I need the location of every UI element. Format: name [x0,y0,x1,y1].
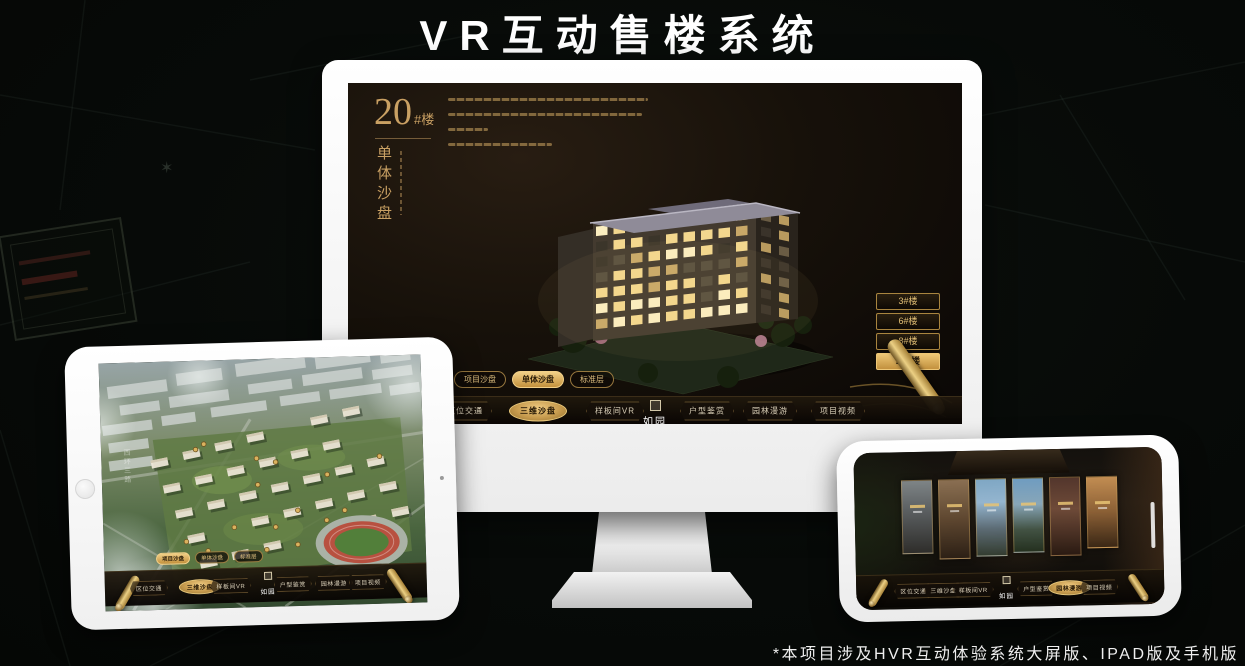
menu-scroll-handle-icon[interactable] [1127,573,1150,602]
nav-item-4[interactable]: 户型鉴赏 [680,402,734,421]
brand-logo: 如园 [998,576,1014,603]
tablet-device: 西环三路 项目沙盘单体沙盘标准层 如园 区位交通三维沙盘样板间VR户型鉴赏园林漫… [64,337,460,631]
nav-item-4[interactable]: 户型鉴赏 [274,576,312,592]
tablet-home-button[interactable] [75,479,96,500]
nav-item-3[interactable]: 样板间VR [586,402,644,421]
menu-scroll-handle-icon[interactable] [385,567,414,604]
main-navigation-bar: 如园 区位交通三维沙盘样板间VR户型鉴赏园林漫游项目视频 [856,569,1165,608]
nav-item-2[interactable]: 三维沙盘 [509,401,567,422]
subtab-1[interactable]: 项目沙盘 [454,371,506,388]
nav-item-5[interactable]: 园林漫游 [743,402,797,421]
brand-logo: 如园 [260,572,276,599]
logo-seal-icon [263,572,271,580]
tablet-camera-icon [440,476,444,480]
nav-item-5[interactable]: 园林漫游 [315,575,353,591]
page-title: VR互动售楼系统 [0,2,1245,63]
monitor-stand-neck [592,510,712,574]
gallery-panel-interior-bright[interactable] [1086,476,1119,549]
project-footnote: *本项目涉及HVR互动体验系统大屏版、IPAD版及手机版 [773,640,1239,664]
panorama-gallery [901,476,1119,561]
logo-text: 如园 [260,589,275,596]
nav-item-3[interactable]: 样板间VR [210,578,251,594]
description-text-line [448,98,648,101]
building-3d-render [498,151,848,396]
building-heading: 20#楼 [374,93,434,131]
subtab-3[interactable]: 标准层 [234,550,263,563]
tablet-screen: 西环三路 项目沙盘单体沙盘标准层 如园 区位交通三维沙盘样板间VR户型鉴赏园林漫… [99,355,428,612]
map-road-label: 西环三路 [121,449,132,485]
subtab-3[interactable]: 标准层 [570,371,614,388]
floor-button-2[interactable]: 6#楼 [876,313,940,330]
building-number-suffix: #楼 [414,112,434,127]
floor-button-1[interactable]: 3#楼 [876,293,940,310]
gallery-panel-interior-warm[interactable] [938,479,971,560]
monitor-stand-base [552,572,752,608]
gallery-panel-building-sky[interactable] [975,478,1008,557]
subtab-2[interactable]: 单体沙盘 [512,371,564,388]
subtitle-english-decoration [400,151,402,215]
subtab-1[interactable]: 项目沙盘 [156,552,190,565]
nav-item-6[interactable]: 项目视频 [811,402,865,421]
building-subtitle: 单体沙盘 [373,145,394,225]
brand-logo: 如园 [643,400,667,424]
floor-button-3[interactable]: 8#楼 [876,333,940,350]
nav-item-6[interactable]: 项目视频 [1080,579,1118,595]
logo-text: 如园 [643,417,667,424]
sandbox-subtab-bar: 项目沙盘单体沙盘标准层 [454,371,614,388]
logo-seal-icon [1002,576,1010,584]
subtab-2[interactable]: 单体沙盘 [195,551,229,564]
map-star-marker: ✶ [160,158,173,178]
logo-seal-icon [650,400,661,411]
poster-canvas: ✶ VR互动售楼系统 20#楼 单体沙盘 [0,0,1245,666]
description-text-line [448,128,488,131]
phone-screen: 如园 区位交通三维沙盘样板间VR户型鉴赏园林漫游项目视频 [853,447,1164,610]
background-plaque [0,217,138,341]
logo-text: 如园 [999,593,1014,600]
nav-item-1[interactable]: 区位交通 [130,580,168,596]
gallery-panel-garden[interactable] [1012,477,1045,553]
nav-item-3[interactable]: 样板间VR [953,582,994,598]
menu-scroll-handle-icon[interactable] [867,578,889,608]
heading-underline [375,138,431,139]
building-number: 20 [374,91,412,133]
gallery-panel-interior-red[interactable] [1049,477,1082,557]
nav-item-6[interactable]: 项目视频 [349,574,387,590]
phone-device: 如园 区位交通三维沙盘样板间VR户型鉴赏园林漫游项目视频 [836,434,1182,622]
description-text-line [448,113,642,116]
description-text-line [448,143,552,146]
gallery-panel-courtyard[interactable] [901,480,934,555]
